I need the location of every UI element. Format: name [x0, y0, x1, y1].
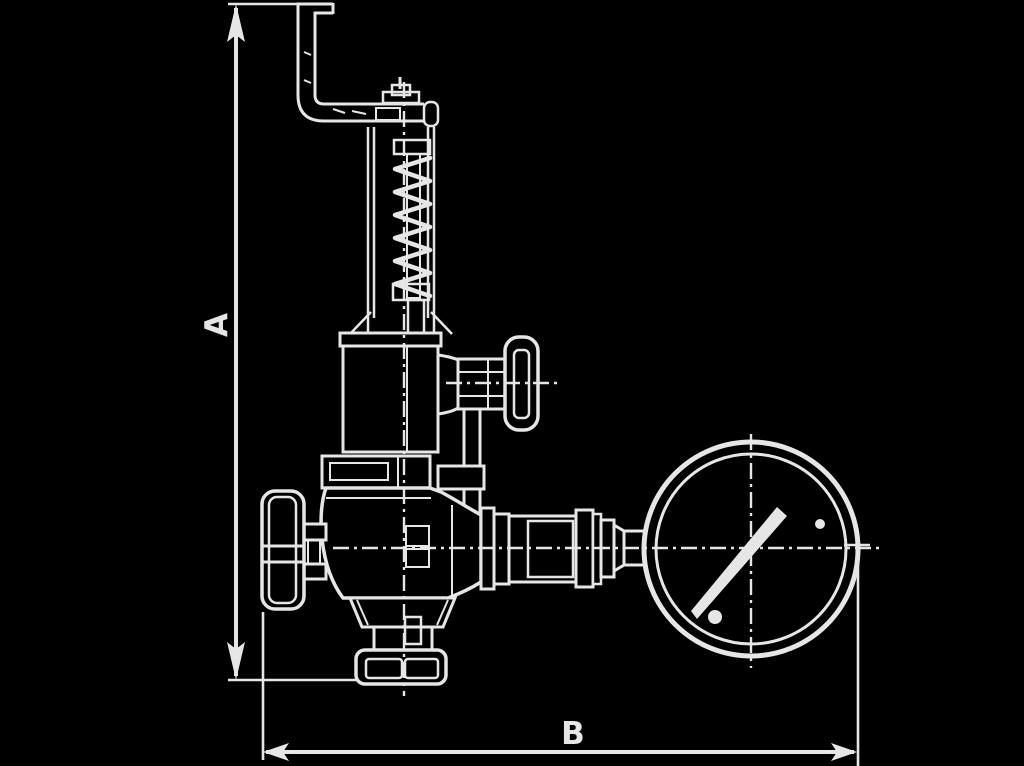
dimension-a-label: A: [199, 313, 235, 337]
lower-stem: [408, 300, 424, 333]
gauge-screw-dot-right: [815, 519, 825, 529]
cap-block: [383, 92, 419, 103]
bottom-outlet: [350, 598, 455, 684]
bent-lever-pipe: [298, 3, 438, 126]
shading-tick: [304, 52, 311, 55]
flange-outer: [322, 456, 430, 488]
outlet-curve-top: [438, 355, 458, 360]
left-handwheel-assembly: [262, 491, 326, 609]
shading-tick: [304, 80, 311, 83]
body-taper: [350, 598, 455, 627]
body-outline: [321, 488, 481, 598]
lever-slot: [376, 108, 400, 120]
bonnet-housing: [343, 346, 438, 452]
spring-yoke: [350, 127, 452, 334]
bonnet-top-plate: [340, 333, 441, 346]
valve-technical-drawing: A B: [0, 0, 1024, 766]
spring-top-seat: [394, 140, 430, 154]
bonnet: [340, 333, 458, 452]
lever-inner-edge: [315, 13, 424, 104]
coil-spring: [395, 158, 430, 296]
shading-tick: [352, 111, 366, 114]
pressure-gauge: [644, 434, 858, 668]
shading-tick: [333, 109, 345, 113]
outlet-curve-bottom: [438, 408, 458, 414]
feed-pipe-collar: [438, 466, 484, 489]
main-valve-body: [321, 488, 481, 598]
bonnet-flange: [322, 456, 430, 488]
drawing-canvas: A B: [0, 0, 1024, 766]
adjusting-cap: [383, 77, 419, 103]
gauge-screw-dot-left: [708, 610, 722, 624]
lever-end-cap: [424, 102, 438, 126]
dimension-b-label: B: [561, 716, 585, 752]
coupling-pipe: [481, 508, 645, 589]
